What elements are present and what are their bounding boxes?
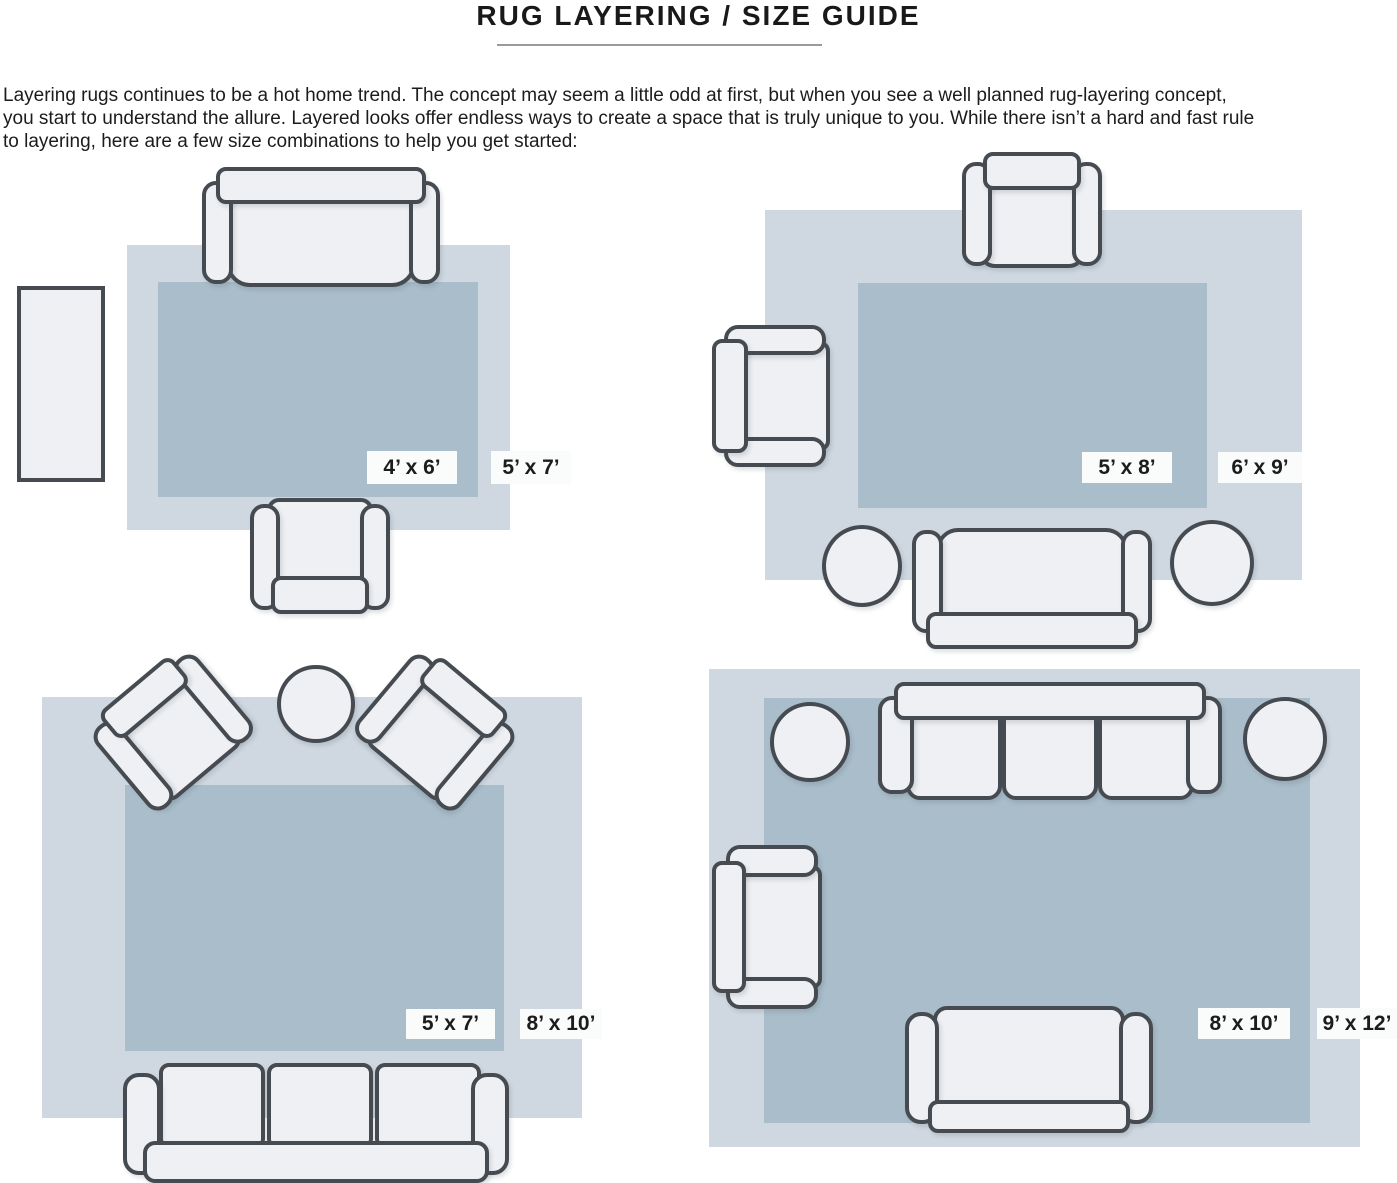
round-ottoman-right [1170, 520, 1254, 606]
sofa-back [894, 682, 1206, 720]
intro-paragraph: Layering rugs continues to be a hot home… [3, 84, 1395, 153]
three-seat-sofa [123, 1063, 509, 1183]
sofa-seat [226, 195, 416, 287]
sofa-cushion-left [906, 706, 1002, 800]
inner-rug-size-label: 8’ x 10’ [1198, 1008, 1290, 1039]
loveseat-back [928, 1100, 1130, 1133]
outer-rug-size-label: 6’ x 9’ [1218, 452, 1302, 483]
armchair-back [271, 576, 369, 614]
loveseat-seat [933, 1006, 1125, 1108]
side-chair-seat [734, 865, 822, 989]
sofa [202, 167, 440, 290]
armchair-seat [267, 498, 373, 584]
console-table [17, 286, 105, 482]
rug-size-guide-infographic: RUG LAYERING / SIZE GUIDE Layering rugs … [0, 0, 1397, 1183]
round-table [277, 665, 355, 743]
armchair-seat [979, 180, 1085, 268]
side-chair [712, 845, 824, 1009]
sofa [912, 518, 1152, 649]
sofa-cushion-right [375, 1063, 481, 1149]
sofa-seat [936, 528, 1128, 624]
outer-rug-size-label: 5’ x 7’ [491, 451, 571, 484]
outer-rug-size-label: 9’ x 12’ [1317, 1008, 1397, 1039]
intro-line-3: to layering, here are a few size combina… [3, 130, 1395, 153]
outer-rug-size-label: 8’ x 10’ [520, 1009, 602, 1039]
sofa-cushion-middle [1002, 706, 1098, 800]
round-ottoman-left [822, 525, 902, 607]
inner-rug-size-label: 5’ x 7’ [406, 1009, 495, 1039]
sofa-cushion-middle [267, 1063, 373, 1149]
armchair [250, 496, 390, 614]
round-ottoman-right [1243, 697, 1327, 781]
armchair [962, 152, 1102, 270]
side-chair-seat [736, 341, 830, 451]
inner-rug-size-label: 5’ x 8’ [1082, 452, 1172, 483]
three-seat-sofa [878, 682, 1222, 802]
side-chair-back [712, 339, 748, 453]
round-ottoman-left [770, 702, 850, 782]
sofa-back [143, 1141, 489, 1183]
side-chair [712, 325, 834, 467]
sofa-back [926, 612, 1138, 649]
title-divider [497, 44, 822, 46]
loveseat [905, 1000, 1153, 1133]
side-chair-back [712, 861, 746, 993]
sofa-back [216, 167, 426, 204]
sofa-cushion-left [159, 1063, 265, 1149]
armchair-back [983, 152, 1081, 190]
sofa-cushion-right [1098, 706, 1194, 800]
inner-rug-size-label: 4’ x 6’ [367, 451, 457, 484]
intro-line-2: you start to understand the allure. Laye… [3, 107, 1395, 130]
page-title: RUG LAYERING / SIZE GUIDE [0, 0, 1397, 32]
intro-line-1: Layering rugs continues to be a hot home… [3, 84, 1395, 107]
